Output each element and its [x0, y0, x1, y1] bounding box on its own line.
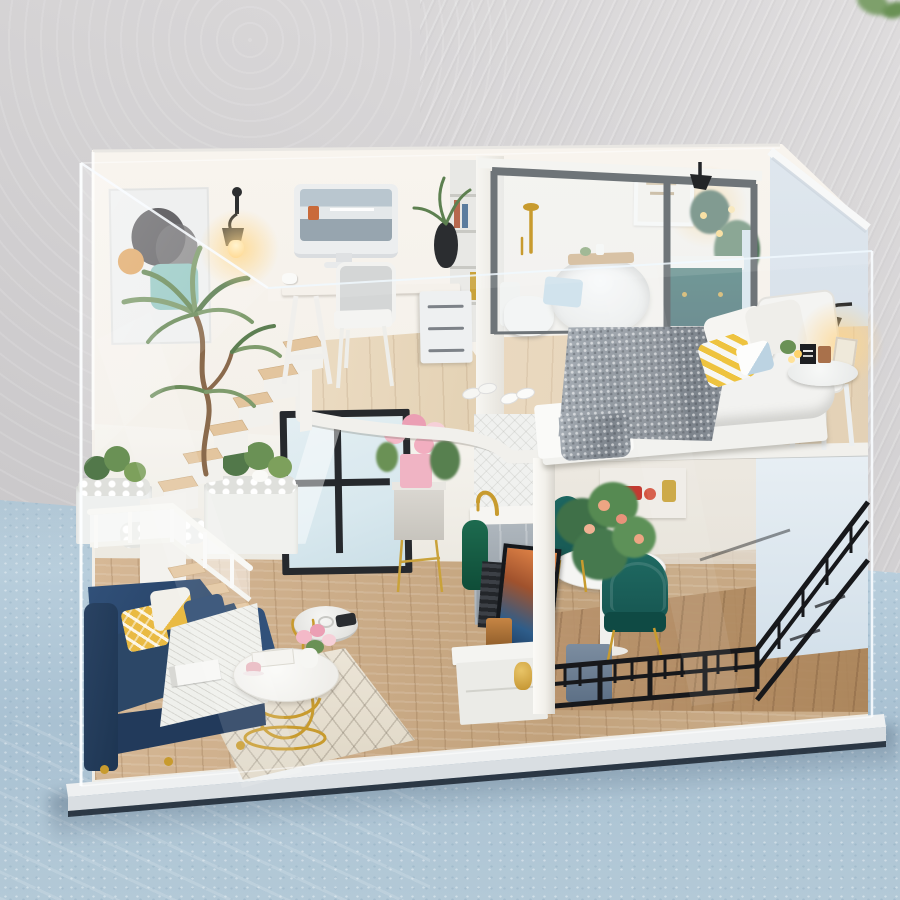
stool-flower: [794, 350, 802, 358]
peach-rose: [634, 534, 644, 544]
art-stroke: [646, 182, 676, 186]
photo-miniature-dollhouse: [0, 0, 900, 900]
white-rock: [252, 470, 268, 482]
gold-canister: [662, 480, 676, 502]
sofa-gold-foot: [236, 741, 245, 750]
sconce-bulb: [228, 240, 244, 258]
fairy-light: [728, 206, 735, 213]
book: [454, 200, 460, 228]
drawer-handle: [428, 327, 464, 331]
screen-image-detail: [308, 206, 319, 220]
red-bowl: [644, 488, 656, 500]
stool-flower: [788, 356, 795, 363]
peach-rose: [616, 514, 627, 524]
botanical-art-frame: [633, 167, 694, 226]
stool-greenery: [780, 340, 796, 354]
book: [462, 204, 468, 228]
dining-plant-pot: [566, 644, 612, 702]
coffee-cup: [282, 273, 297, 284]
abstract-wall-art: [109, 187, 212, 345]
black-vase: [434, 222, 458, 268]
table-vase: [300, 648, 318, 668]
art-stroke: [650, 192, 674, 195]
shrub: [124, 462, 146, 482]
gold-jar: [514, 662, 532, 690]
bedside-stool-top: [788, 360, 858, 386]
knit-blanket-drape: [559, 413, 632, 462]
desk-chair-seat: [334, 309, 393, 329]
pebbles-right: [206, 476, 296, 494]
rose: [402, 414, 426, 436]
sign-text-line: [803, 350, 813, 352]
drawer-handle: [428, 349, 464, 353]
balcony-outdoor-haze: [756, 448, 868, 660]
shrub: [268, 456, 292, 478]
wood-cup: [818, 346, 831, 363]
fairy-light: [700, 212, 707, 219]
tray-succulent: [580, 247, 591, 256]
planter-right: [204, 484, 298, 554]
table-rose: [322, 634, 336, 646]
dining-chair-seat: [604, 612, 666, 632]
drawer-unit: [419, 291, 472, 364]
sofa-left-arm: [84, 603, 118, 771]
peach-rose: [584, 524, 595, 534]
peach-rose: [598, 500, 610, 511]
drawer-handle: [428, 305, 464, 309]
mini-sign: [800, 344, 816, 364]
tray-candle: [596, 244, 604, 255]
pink-pot: [400, 454, 432, 488]
sofa-gold-foot: [100, 765, 109, 774]
fairy-light: [716, 230, 723, 237]
sign-text-line: [803, 355, 813, 357]
art-teal-square: [150, 263, 199, 310]
stand-greenery: [376, 442, 398, 472]
stand-greenery: [430, 440, 460, 480]
saucer: [243, 671, 264, 676]
flower-stand-box: [394, 486, 444, 540]
sofa-gold-foot: [164, 757, 173, 766]
art-orange-circle: [118, 248, 144, 274]
screen-text-band: [330, 208, 374, 211]
vacuum-notch: [335, 612, 357, 627]
support-column: [533, 458, 555, 714]
imac-monitor: [294, 184, 398, 258]
